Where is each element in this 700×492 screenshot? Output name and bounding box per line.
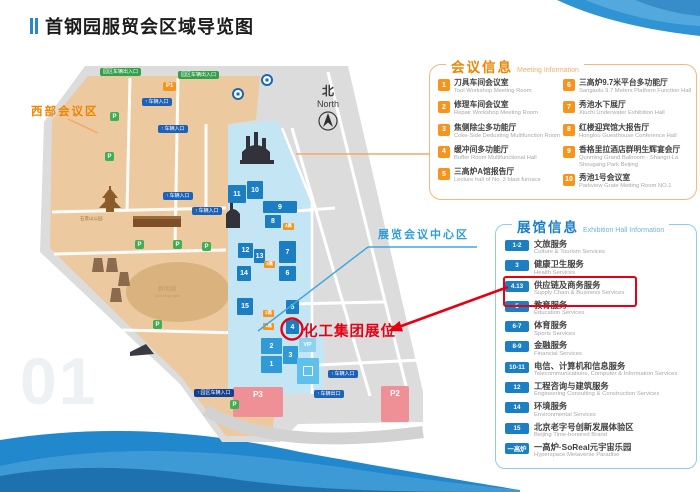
meeting-item-number: 5 <box>438 168 450 180</box>
exhibition-info-item-highlighted: 4.13供应链及商务服务Supply Chain & Business Serv… <box>505 280 689 300</box>
meeting-info-item: 3焦侧除尘多功能厅Coke-Side Dedusting Multifuncti… <box>438 123 562 141</box>
entrance-pill: ↑车辆入口 <box>158 125 188 133</box>
exhibition-item-zh: 电信、计算机和信息服务 <box>534 361 677 371</box>
exhibition-item-text: 一高炉·SoReal元宇宙乐园Hyperspace Metaverse Para… <box>534 442 631 460</box>
meeting-item-zh: 焦侧除尘多功能厅 <box>454 123 560 133</box>
page-title: 首钢园服贸会区域导览图 <box>45 13 254 39</box>
parking-marker: P <box>135 240 144 249</box>
meeting-item-number: 6 <box>563 79 575 91</box>
exhibition-item-en: Environmental Services <box>534 412 596 419</box>
entrance-pill-label: 园区车辆出入口 <box>181 72 216 78</box>
exhibition-info-item: 5教育服务Education Services <box>505 300 689 320</box>
park-name-label: 石景山公园 <box>80 216 103 222</box>
map-building-11: 11 <box>228 185 246 203</box>
exhibition-item-text: 工程咨询与建筑服务Engineering Consulting & Constr… <box>534 381 659 399</box>
map-building-7: 7 <box>279 241 296 263</box>
compass: 北 North <box>306 82 350 132</box>
meeting-info-title-zh: 会议信息 <box>451 56 513 76</box>
exhibition-info-item: 15北京老字号创新发展体验区Beijing Time-honored Brand <box>505 422 689 442</box>
parking-area-label: P3 <box>253 390 263 399</box>
up-arrow-icon: ↑ <box>166 193 169 199</box>
map-building-12: 12 <box>238 243 253 258</box>
meeting-item-number: 2 <box>438 101 450 113</box>
entrance-pill-label: 园区车辆出入口 <box>103 69 138 75</box>
entrance-pill-label: 车辆入口 <box>165 126 185 132</box>
map-building-14: 14 <box>237 266 251 281</box>
exhibition-item-number: 8-9 <box>505 341 529 352</box>
meeting-item-en: Buffer Room Multifunctional Hall <box>454 155 537 163</box>
entrance-pill: ↑车辆入口 <box>142 98 172 106</box>
meeting-item-number: 3 <box>438 124 450 136</box>
compass-en-label: North <box>306 99 350 109</box>
exhibition-item-text: 金融服务Financial Services <box>534 340 582 358</box>
meeting-info-item: 10秀池1号会议室Parkview Grate Metting Room NO.… <box>563 173 691 191</box>
meeting-item-number: 4 <box>438 146 450 158</box>
meeting-item-en: Repair Workshop Meeting Room <box>454 110 538 118</box>
exhibition-item-zh: 北京老字号创新发展体验区 <box>534 422 634 432</box>
exhibition-item-text: 供应链及商务服务Supply Chain & Business Services <box>534 280 624 298</box>
meeting-item-text: 刀具车间会议室Tool Workshop Meeting Room <box>454 78 532 96</box>
map-building-4: 4 <box>286 320 299 334</box>
map-building-8: 8 <box>265 215 281 228</box>
meeting-item-text: 修理车间会议室Repair Workshop Meeting Room <box>454 100 538 118</box>
meeting-info-item: 7秀池水下展厅Xiuchi Underwater Exhibition Hall <box>563 100 691 118</box>
meeting-item-text: 香格里拉酒店群明生辉宴会厅Qunming Grand Ballroom - Sh… <box>579 145 691 168</box>
parking-area-label: P2 <box>390 389 400 398</box>
exhibition-center-zone-label: 展览会议中心区 <box>378 226 469 242</box>
meeting-info-column-left: 1刀具车间会议室Tool Workshop Meeting Room2修理车间会… <box>438 78 562 189</box>
map-building-2: 2 <box>261 338 282 354</box>
map-building-hall <box>297 358 319 384</box>
meeting-item-en: Honglou Guesthouse Conference Hall <box>579 133 677 141</box>
exhibition-item-en: Telecommunications, Computer & Informati… <box>534 371 677 378</box>
up-arrow-icon: ↑ <box>161 126 164 132</box>
meeting-item-en: Tool Workshop Meeting Room <box>454 88 532 96</box>
exhibition-item-text: 环境服务Environmental Services <box>534 401 596 419</box>
exhibition-info-item: 10-11电信、计算机和信息服务Telecommunications, Comp… <box>505 361 689 381</box>
furnace-badge: 4高 <box>283 223 294 230</box>
meeting-item-text: 缓冲间多功能厅Buffer Room Multifunctional Hall <box>454 145 537 163</box>
entrance-pill: P1 <box>163 82 176 91</box>
exhibition-item-en: Culture & Tourism Services <box>534 249 605 256</box>
exhibition-item-text: 北京老字号创新发展体验区Beijing Time-honored Brand <box>534 422 634 440</box>
exhibition-item-text: 电信、计算机和信息服务Telecommunications, Computer … <box>534 361 677 379</box>
exhibition-item-en: Engineering Consulting & Construction Se… <box>534 391 659 398</box>
entrance-pill: ↑车辆入口 <box>192 207 222 215</box>
metro-station-icon <box>262 75 272 85</box>
exhibition-item-number: 1-2 <box>505 240 529 251</box>
entrance-pill-label: 园区车辆入口 <box>201 390 231 396</box>
meeting-item-zh: 刀具车间会议室 <box>454 78 532 88</box>
entrance-pill: ↑车辆入口 <box>163 192 193 200</box>
title-bar-icon <box>35 18 38 34</box>
exhibition-info-item: 1-2文旅服务Culture & Tourism Services <box>505 239 689 259</box>
meeting-item-number: 9 <box>563 146 575 158</box>
exhibition-item-zh: 文旅服务 <box>534 239 605 249</box>
up-arrow-icon: ↑ <box>195 208 198 214</box>
meeting-info-item: 4缓冲间多功能厅Buffer Room Multifunctional Hall <box>438 145 562 163</box>
exhibition-item-number: 6-7 <box>505 321 529 332</box>
map-building-5: 5 <box>286 300 299 314</box>
entrance-pill: 园区车辆出入口 <box>178 71 219 79</box>
metro-station-icon <box>233 89 243 99</box>
exhibition-info-title: 展馆信息 Exhibition Hall Information <box>512 216 669 236</box>
up-arrow-icon: ↑ <box>197 390 200 396</box>
exhibition-item-number: 10-11 <box>505 362 529 373</box>
entrance-pill: ↑车辆入口 <box>328 370 358 378</box>
parking-marker: P <box>105 152 114 161</box>
meeting-info-title-en: Meeting Information <box>517 67 579 74</box>
exhibition-item-en: Education Services <box>534 310 584 317</box>
hall-icon <box>303 366 313 376</box>
parking-marker: P <box>153 320 162 329</box>
meeting-item-text: 秀池1号会议室Parkview Grate Metting Room NO.1 <box>579 173 671 191</box>
map-base-art <box>30 62 430 482</box>
west-conference-zone-label: 西部会议区 <box>31 103 99 119</box>
exhibition-item-number: 3 <box>505 260 529 271</box>
meeting-item-number: 7 <box>563 101 575 113</box>
meeting-item-zh: 秀池水下展厅 <box>579 100 665 110</box>
entrance-pill: 园区车辆出入口 <box>100 68 141 76</box>
meeting-item-en: Coke-Side Dedusting Multifunction Room <box>454 133 560 141</box>
meeting-info-legend: 会议信息 Meeting Information 1刀具车间会议室Tool Wo… <box>429 64 697 200</box>
exhibition-item-en: Hyperspace Metaverse Paradise <box>534 452 631 459</box>
entrance-pill-label: 车辆入口 <box>199 208 219 214</box>
chemical-group-booth-label: 化工集团展位 <box>303 320 396 341</box>
entrance-pill-label: 车辆出口 <box>321 391 341 397</box>
up-arrow-icon: ↑ <box>317 391 320 397</box>
meeting-info-item: 8红楼迎宾馆大报告厅Honglou Guesthouse Conference … <box>563 123 691 141</box>
parking-marker: P <box>230 400 239 409</box>
exhibition-info-item: 12工程咨询与建筑服务Engineering Consulting & Cons… <box>505 381 689 401</box>
meeting-item-text: 红楼迎宾馆大报告厅Honglou Guesthouse Conference H… <box>579 123 677 141</box>
exhibition-item-en: Supply Chain & Business Services <box>534 290 624 297</box>
exhibition-info-legend: 展馆信息 Exhibition Hall Information 1-2文旅服务… <box>495 224 697 469</box>
meeting-item-zh: 缓冲间多功能厅 <box>454 145 537 155</box>
up-arrow-icon: ↑ <box>331 371 334 377</box>
lake-name-en: Qunming Lake <box>154 293 180 298</box>
exhibition-item-zh: 环境服务 <box>534 401 596 411</box>
meeting-item-en: Sangaolu 9.7 Meters Platform Function Ha… <box>579 88 691 96</box>
site-map: P3P2 111098121371461554231VIP 4高3高2高1高 园… <box>30 62 430 482</box>
meeting-item-en: Xiuchi Underwater Exhibition Hall <box>579 110 665 118</box>
furnace-badge: 2高 <box>263 310 274 317</box>
meeting-item-zh: 红楼迎宾馆大报告厅 <box>579 123 677 133</box>
furnace-badge: 3高 <box>264 261 275 268</box>
meeting-item-en: Parkview Grate Metting Room NO.1 <box>579 183 671 191</box>
title-row: 首钢园服贸会区域导览图 <box>30 13 254 39</box>
exhibition-item-zh: 供应链及商务服务 <box>534 280 624 290</box>
exhibition-item-number: 4.13 <box>505 281 529 292</box>
meeting-item-en: Lecture hall of No. 3 blast furnace <box>454 177 541 185</box>
exhibition-info-title-en: Exhibition Hall Information <box>583 227 664 234</box>
exhibition-item-text: 体育服务Sports Services <box>534 320 575 338</box>
exhibition-item-number: 一高炉 <box>505 443 529 454</box>
meeting-item-zh: 三高炉A馆报告厅 <box>454 167 541 177</box>
north-arrow-icon <box>317 110 339 132</box>
parking-area-P3: P3 <box>233 387 283 417</box>
exhibition-item-zh: 教育服务 <box>534 300 584 310</box>
exhibition-info-item: 6-7体育服务Sports Services <box>505 320 689 340</box>
furnace-badge: 1高 <box>263 323 274 330</box>
exhibition-info-list: 1-2文旅服务Culture & Tourism Services3健康卫生服务… <box>505 239 689 462</box>
exhibition-item-en: Sports Services <box>534 331 575 338</box>
map-building-15: 15 <box>237 298 253 315</box>
meeting-info-item: 1刀具车间会议室Tool Workshop Meeting Room <box>438 78 562 96</box>
entrance-pill: ↑车辆出口 <box>314 390 344 398</box>
compass-zh-label: 北 <box>306 82 350 99</box>
entrance-pill-label: 车辆入口 <box>335 371 355 377</box>
exhibition-item-zh: 健康卫生服务 <box>534 259 584 269</box>
exhibition-info-item: 14环境服务Environmental Services <box>505 401 689 421</box>
exhibition-item-text: 文旅服务Culture & Tourism Services <box>534 239 605 257</box>
exhibition-item-number: 14 <box>505 402 529 413</box>
map-building-10: 10 <box>247 181 263 199</box>
meeting-item-zh: 香格里拉酒店群明生辉宴会厅 <box>579 145 691 155</box>
exhibition-info-title-zh: 展馆信息 <box>517 216 579 236</box>
map-building-6: 6 <box>279 266 296 281</box>
meeting-item-en: Qunming Grand Ballroom - Shangri-La Shou… <box>579 155 691 168</box>
meeting-item-number: 10 <box>563 174 575 186</box>
map-building-9: 9 <box>263 201 297 213</box>
exhibition-item-en: Health Services <box>534 270 584 277</box>
meeting-info-column-right: 6三高炉9.7米平台多功能厅Sangaolu 9.7 Meters Platfo… <box>563 78 691 195</box>
title-bar-icon <box>30 18 33 34</box>
exhibition-item-zh: 工程咨询与建筑服务 <box>534 381 659 391</box>
meeting-item-zh: 三高炉9.7米平台多功能厅 <box>579 78 691 88</box>
exhibition-item-number: 5 <box>505 301 529 312</box>
meeting-info-title: 会议信息 Meeting Information <box>446 56 584 76</box>
meeting-item-text: 焦侧除尘多功能厅Coke-Side Dedusting Multifunctio… <box>454 123 560 141</box>
poster-page: 01 首钢园服贸会区域导览图 <box>0 0 700 492</box>
top-right-wave-decoration <box>545 0 700 58</box>
map-building-1: 1 <box>261 356 282 373</box>
exhibition-item-en: Beijing Time-honored Brand <box>534 432 634 439</box>
meeting-item-zh: 秀池1号会议室 <box>579 173 671 183</box>
meeting-item-zh: 修理车间会议室 <box>454 100 538 110</box>
meeting-info-item: 2修理车间会议室Repair Workshop Meeting Room <box>438 100 562 118</box>
meeting-info-item: 6三高炉9.7米平台多功能厅Sangaolu 9.7 Meters Platfo… <box>563 78 691 96</box>
exhibition-info-item: 8-9金融服务Financial Services <box>505 340 689 360</box>
lake-name-zh: 群明湖 <box>154 284 180 293</box>
meeting-item-text: 秀池水下展厅Xiuchi Underwater Exhibition Hall <box>579 100 665 118</box>
parking-marker: P <box>110 112 119 121</box>
entrance-pill-label: 车辆入口 <box>149 99 169 105</box>
entrance-pill: ↑园区车辆入口 <box>194 389 234 397</box>
exhibition-item-zh: 一高炉·SoReal元宇宙乐园 <box>534 442 631 452</box>
exhibition-item-text: 教育服务Education Services <box>534 300 584 318</box>
exhibition-item-zh: 金融服务 <box>534 340 582 350</box>
parking-marker: P <box>173 240 182 249</box>
meeting-info-item: 9香格里拉酒店群明生辉宴会厅Qunming Grand Ballroom - S… <box>563 145 691 168</box>
meeting-item-number: 8 <box>563 124 575 136</box>
entrance-pill-label: 车辆入口 <box>170 193 190 199</box>
exhibition-item-number: 15 <box>505 423 529 434</box>
parking-marker: P <box>202 242 211 251</box>
exhibition-info-item: 一高炉一高炉·SoReal元宇宙乐园Hyperspace Metaverse P… <box>505 442 689 462</box>
exhibition-item-zh: 体育服务 <box>534 320 575 330</box>
meeting-item-number: 1 <box>438 79 450 91</box>
meeting-info-item: 5三高炉A馆报告厅Lecture hall of No. 3 blast fur… <box>438 167 562 185</box>
exhibition-item-number: 12 <box>505 382 529 393</box>
exhibition-item-text: 健康卫生服务Health Services <box>534 259 584 277</box>
exhibition-item-en: Financial Services <box>534 351 582 358</box>
up-arrow-icon: ↑ <box>145 99 148 105</box>
parking-area-P2: P2 <box>381 386 409 422</box>
map-building-3: 3 <box>283 346 298 364</box>
exhibition-info-item: 3健康卫生服务Health Services <box>505 259 689 279</box>
lake-name-label: 群明湖 Qunming Lake <box>154 284 180 298</box>
meeting-item-text: 三高炉A馆报告厅Lecture hall of No. 3 blast furn… <box>454 167 541 185</box>
meeting-item-text: 三高炉9.7米平台多功能厅Sangaolu 9.7 Meters Platfor… <box>579 78 691 96</box>
entrance-pill-label: P1 <box>166 83 173 90</box>
